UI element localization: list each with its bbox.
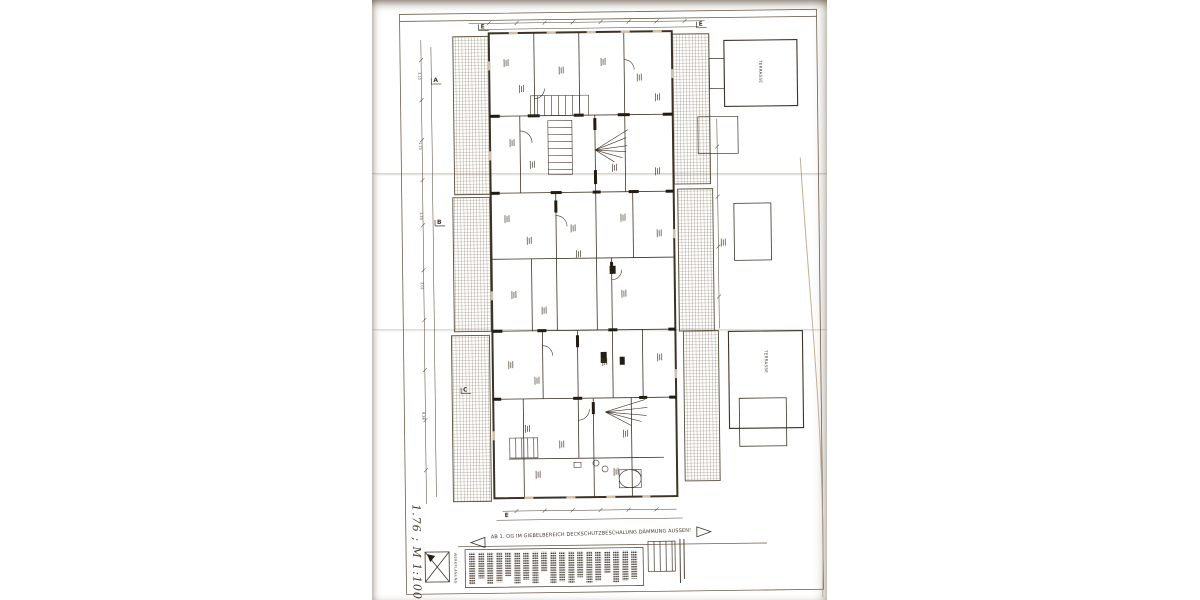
annotation-arrow-right [697,527,711,537]
legend-caption-marks [680,539,685,583]
dim-left-1: 1.73 [418,142,422,150]
building-walls [489,31,678,498]
dimension-chain-right [715,119,722,329]
stairs [506,94,648,458]
hatch-band-right [672,34,720,481]
section-marker-b: B [437,219,442,226]
section-marker-c: C [463,387,468,394]
werkplanung-label: WERKPLANUNG [453,553,457,584]
bathroom-fixtures [574,460,641,489]
section-marker-e-bottom: E [505,512,509,519]
dim-left-4: 8.36 [421,412,425,420]
terrace-middle [734,203,772,260]
screenshot: TERRASSE TERRASSE [0,0,1200,600]
annotation-text: AB 1. OG IM GIEBELBEREICH DECKSCHUTZBESC… [491,527,692,541]
section-marker-a: A [433,77,438,84]
dimension-chain-bottom [497,507,683,520]
dimension-chain-left [419,40,437,504]
terrace-bottom-label: TERRASSE [764,349,769,373]
north-arrow-box [425,552,449,582]
section-marker-e-top-right: E [699,21,703,28]
north-arrow-icon [427,554,435,562]
floor-plan-photo: TERRASSE TERRASSE [372,0,827,600]
section-marker-e-top-left: E [481,23,485,30]
terrace-top-label: TERRASSE [758,59,763,83]
paper-crease [800,157,823,597]
dim-left-3: 2.01 [420,282,424,290]
floor-plan-drawing: TERRASSE TERRASSE [372,0,827,600]
legend-table [648,541,675,571]
handwritten-scale-note: 1.76 ; M 1:100 [409,504,423,600]
dim-left-0: 3.10 [417,72,421,80]
dim-left-2: 2.33 [419,212,423,220]
hatch-band-left [448,36,495,501]
